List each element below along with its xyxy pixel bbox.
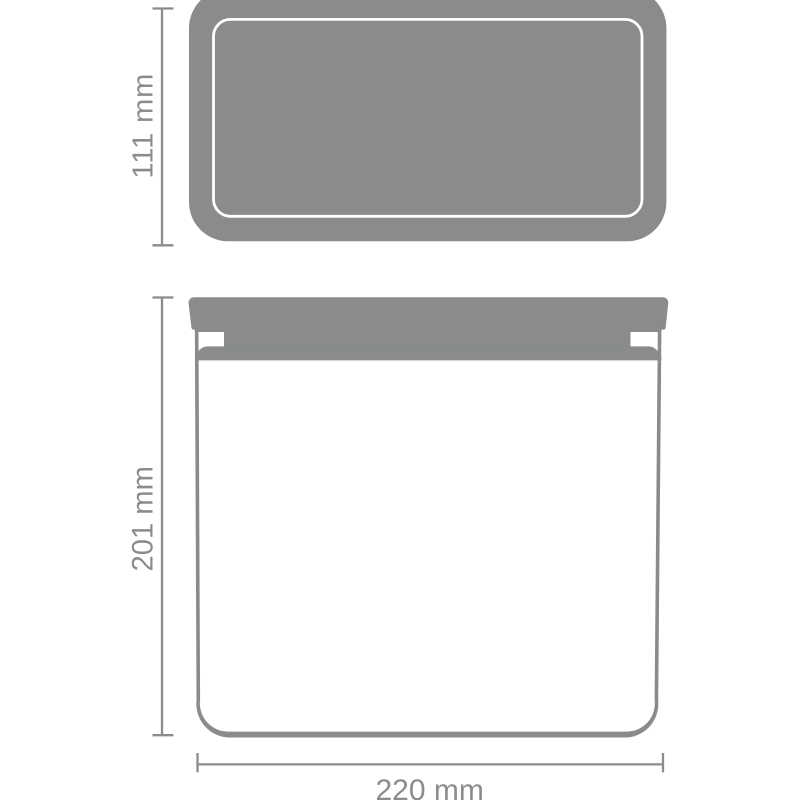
svg-text:111 mm: 111 mm: [128, 73, 160, 179]
svg-text:201 mm: 201 mm: [128, 466, 160, 571]
svg-text:220 mm: 220 mm: [376, 774, 484, 800]
